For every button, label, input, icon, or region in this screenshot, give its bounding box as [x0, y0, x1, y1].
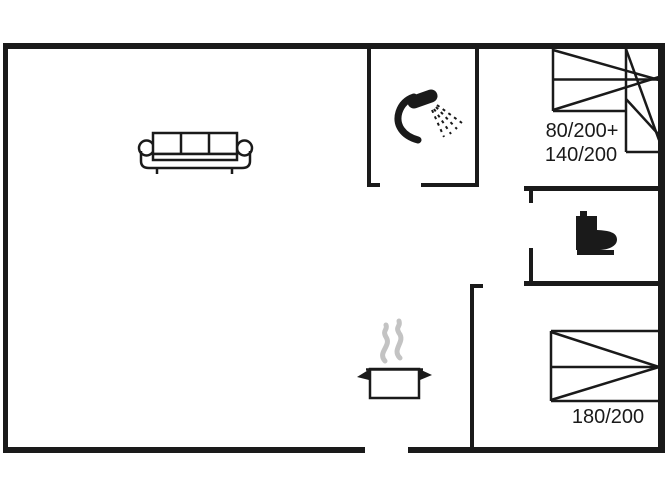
toilet-icon	[576, 211, 617, 255]
single-bed-icon	[551, 331, 659, 401]
wc-wall-left-lower	[529, 248, 533, 284]
shower-spray	[432, 105, 462, 137]
interior-walls	[367, 49, 658, 447]
pot-body	[370, 369, 419, 398]
single-bed-size-label: 180/200	[572, 406, 644, 428]
toilet-body	[576, 216, 617, 250]
floor-plan-drawing: 80/200+ 140/200 180/200	[0, 0, 667, 500]
wc-wall-top	[524, 186, 658, 191]
shower-room-wall-right	[475, 49, 479, 187]
sofa-icon	[139, 133, 252, 174]
shower-room-wall-left-foot	[367, 183, 380, 187]
steam-icon	[383, 321, 401, 361]
outer-walls	[3, 43, 665, 453]
outer-wall-bottom-right	[408, 447, 665, 453]
shower-room-wall-left	[367, 49, 371, 187]
toilet-base	[577, 250, 614, 255]
pot-handle-left	[357, 369, 370, 380]
shower-head	[414, 96, 431, 102]
wc-wall-bottom	[524, 281, 658, 286]
wc-wall-left-upper	[529, 191, 533, 203]
cooking-pot-icon	[357, 369, 432, 398]
sofa-cushions	[153, 133, 237, 154]
double-bed-size-label-line1: 80/200+	[546, 120, 619, 142]
outer-wall-left	[3, 43, 8, 453]
pot-handle-right	[419, 369, 432, 380]
outer-wall-top	[3, 43, 665, 49]
outer-wall-bottom-left	[3, 447, 365, 453]
shower-icon	[398, 96, 462, 140]
double-bed-size-label-line2: 140/200	[545, 144, 617, 166]
outer-wall-right	[658, 43, 665, 453]
sofa-rail	[153, 154, 237, 160]
kitchen-wall	[470, 284, 474, 447]
floor-plan: 80/200+ 140/200 180/200	[0, 0, 667, 500]
shower-room-wall-bottom	[421, 183, 479, 187]
